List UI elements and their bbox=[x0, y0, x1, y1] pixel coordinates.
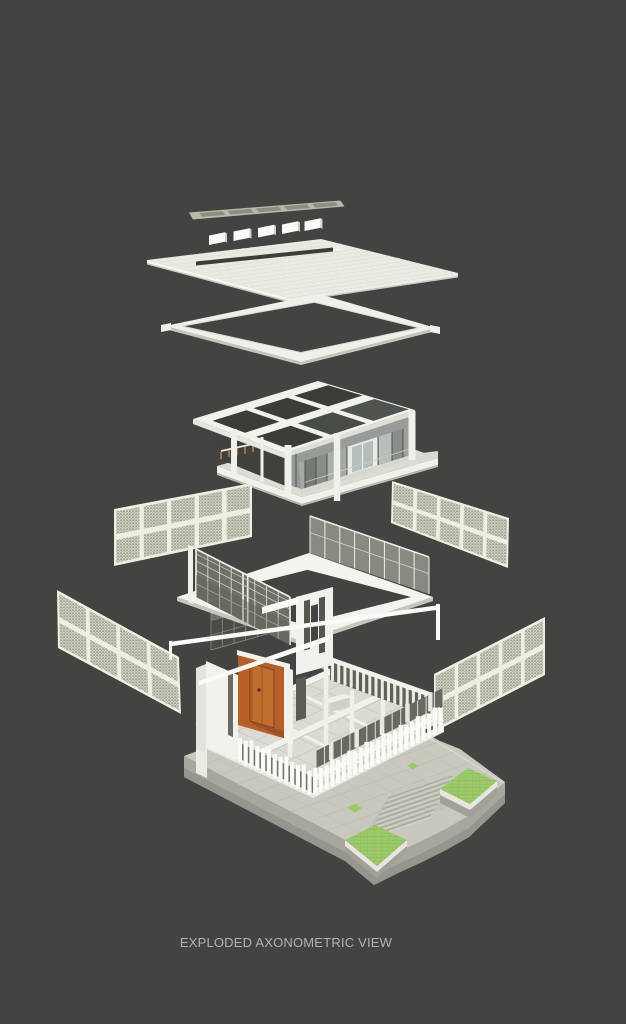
svg-text:EXPLODED AXONOMETRIC VIEW: EXPLODED AXONOMETRIC VIEW bbox=[180, 935, 393, 950]
